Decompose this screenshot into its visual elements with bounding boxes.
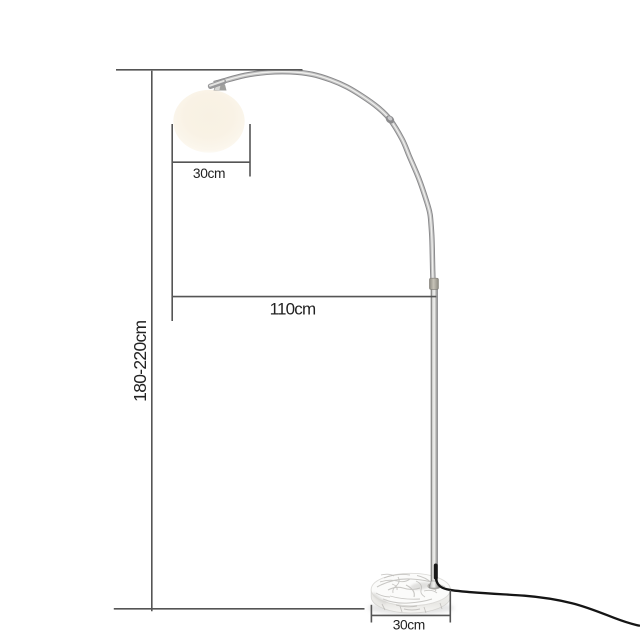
svg-text:180-220cm: 180-220cm <box>130 320 150 401</box>
svg-text:30cm: 30cm <box>393 618 425 633</box>
svg-text:30cm: 30cm <box>193 166 225 181</box>
svg-text:110cm: 110cm <box>270 300 316 319</box>
